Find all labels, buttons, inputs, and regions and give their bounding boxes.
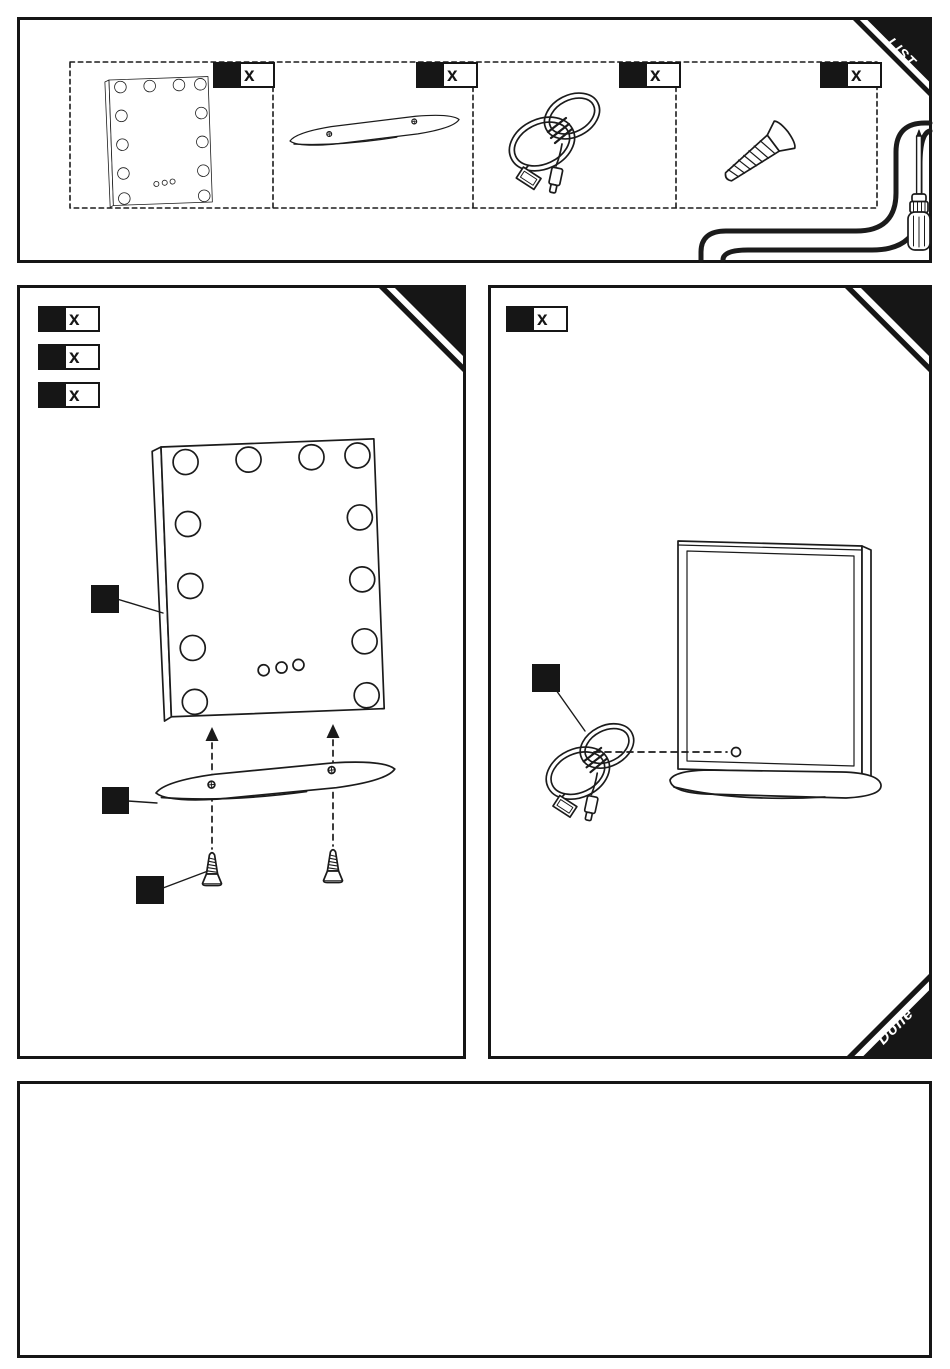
qty-text: x <box>66 384 98 406</box>
qty-text: x <box>66 308 98 330</box>
qty-label-screw: x <box>820 62 882 88</box>
step2-qty-label-1: x <box>506 306 568 332</box>
step2-corner-ribbon <box>845 288 929 372</box>
cable-callout-square <box>532 664 560 692</box>
qty-label-mirror: x <box>213 62 275 88</box>
instruction-page: LIST Done x x x x x x <box>0 0 950 1369</box>
qty-label-cable: x <box>619 62 681 88</box>
qty-text: x <box>66 346 98 368</box>
step1-qty-label-1: x <box>38 306 100 332</box>
parts-list-panel <box>17 17 932 263</box>
part-code-block <box>40 308 66 330</box>
part-code-block <box>40 346 66 368</box>
qty-text: x <box>444 64 476 86</box>
step1-corner-ribbon <box>379 288 463 372</box>
qty-label-base: x <box>416 62 478 88</box>
part-code-block <box>508 308 534 330</box>
mirror-callout-square <box>91 585 119 613</box>
notes-panel <box>17 1081 932 1358</box>
part-code-block <box>822 64 848 86</box>
part-code-block <box>418 64 444 86</box>
base-callout-square <box>102 787 129 814</box>
qty-text: x <box>848 64 880 86</box>
done-corner-ribbon: Done <box>847 974 929 1056</box>
part-code-block <box>40 384 66 406</box>
step1-qty-label-2: x <box>38 344 100 370</box>
part-code-block <box>621 64 647 86</box>
part-code-block <box>215 64 241 86</box>
qty-text: x <box>241 64 273 86</box>
qty-text: x <box>647 64 679 86</box>
step1-qty-label-3: x <box>38 382 100 408</box>
qty-text: x <box>534 308 566 330</box>
screw-callout-square <box>136 876 164 904</box>
